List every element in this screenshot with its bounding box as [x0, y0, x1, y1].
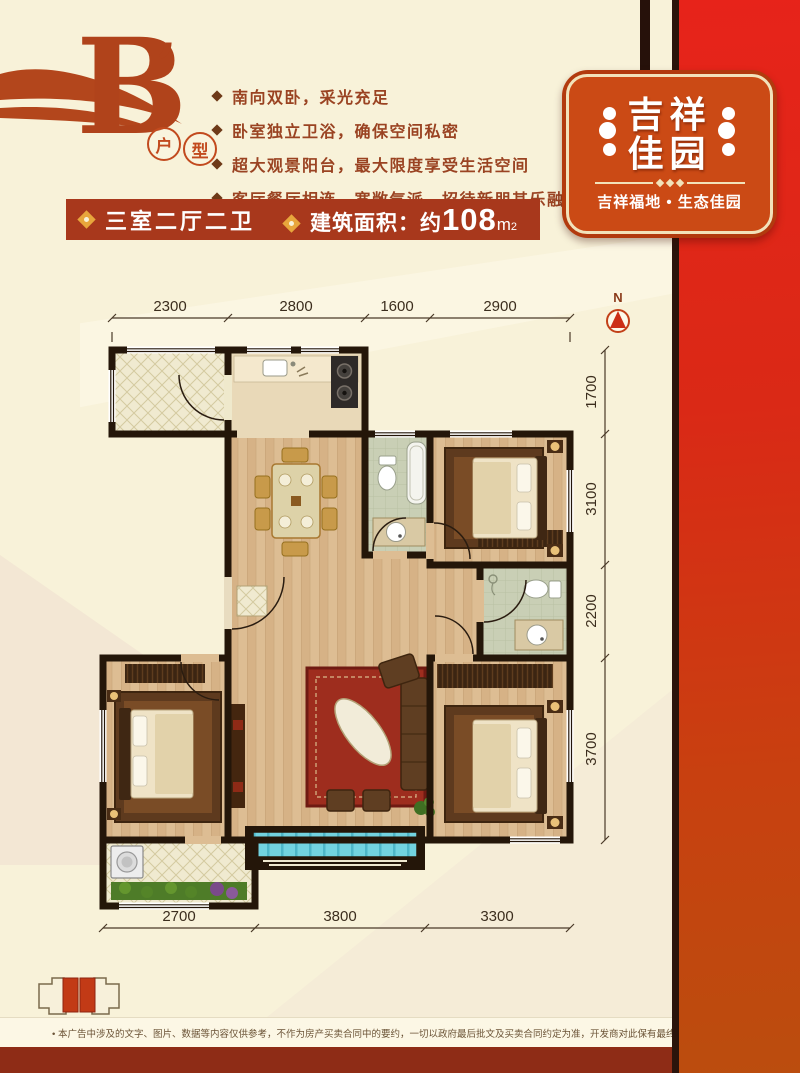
dim-bottom-0: 2700 — [162, 908, 195, 925]
feature-item: 超大观景阳台，最大限度享受生活空间 — [213, 152, 582, 176]
north-label: N — [613, 290, 622, 305]
badge-divider — [595, 180, 745, 186]
dim-bottom-1: 3800 — [323, 908, 356, 925]
area-unit: m — [497, 215, 511, 235]
brand-name-line2: 佳园 — [627, 135, 711, 174]
view-balcony — [245, 826, 425, 870]
spec-banner: 三室二厅二卫 建筑面积： 约 108 m 2 — [66, 199, 540, 240]
unit-tag-char: 户 — [147, 127, 181, 161]
poster-page: B ’ 户 型 南向双卧，采光充足 卧室独立卫浴，确保空间私密 超大观景阳台，最… — [0, 0, 800, 1073]
dim-top-1: 2800 — [279, 298, 312, 315]
area-label: 建筑面积： — [310, 207, 420, 237]
feature-text: 南向双卧，采光充足 — [232, 84, 390, 108]
room-spec-text: 三室二厅二卫 — [105, 204, 255, 236]
brand-plaque: 吉祥 佳园 吉祥福地 • 生态佳园 — [562, 70, 777, 238]
dim-right-0: 1700 — [583, 375, 600, 408]
unit-tag-char: 型 — [183, 132, 217, 166]
brand-name: 吉祥 佳园 — [627, 96, 711, 174]
diamond-bullet-icon — [211, 124, 222, 135]
diamond-bullet-icon — [211, 158, 222, 169]
feature-item: 南向双卧，采光充足 — [213, 84, 582, 108]
area-group: 建筑面积： 约 108 m 2 — [285, 202, 517, 238]
dim-right-2: 2200 — [583, 594, 600, 627]
key-plan-icon — [32, 966, 126, 1024]
brand-name-line1: 吉祥 — [627, 96, 711, 135]
dim-right-3: 3700 — [583, 732, 600, 765]
unit-type-badge: 户 型 — [147, 127, 217, 166]
floorplan-drawing: 2300 2800 1600 2900 1700 3100 2200 3700 … — [85, 280, 645, 960]
disclaimer-bar: • 本广告中涉及的文字、图片、数据等内容仅供参考，不作为房产买卖合同中的要约，一… — [0, 1017, 672, 1047]
area-approx: 约 — [420, 207, 442, 237]
flower-ornament-icon — [282, 214, 300, 232]
cloud-ornament-icon — [599, 107, 621, 163]
dim-top-2: 1600 — [380, 298, 413, 315]
feature-text: 卧室独立卫浴，确保空间私密 — [232, 118, 460, 142]
bedroom2-furniture — [445, 440, 563, 557]
cloud-ornament-icon — [718, 107, 740, 163]
diamond-bullet-icon — [211, 90, 222, 101]
dim-top-3: 2900 — [483, 298, 516, 315]
disclaimer-text: • 本广告中涉及的文字、图片、数据等内容仅供参考，不作为房产买卖合同中的要约，一… — [52, 1026, 672, 1040]
area-value: 108 — [442, 202, 497, 238]
dim-right-1: 3100 — [583, 482, 600, 515]
north-indicator: N — [607, 290, 629, 332]
dim-bottom-2: 3300 — [480, 908, 513, 925]
feature-text: 超大观景阳台，最大限度享受生活空间 — [232, 152, 530, 176]
area-unit-sup: 2 — [511, 221, 517, 233]
apostrophe-flourish: ’ — [156, 36, 176, 94]
brand-plaque-inner: 吉祥 佳园 吉祥福地 • 生态佳园 — [566, 74, 773, 234]
brand-tagline: 吉祥福地 • 生态佳园 — [597, 191, 742, 212]
flower-ornament-icon — [77, 210, 95, 228]
feature-item: 卧室独立卫浴，确保空间私密 — [213, 118, 582, 142]
dim-top-0: 2300 — [153, 298, 186, 315]
brand-title-row: 吉祥 佳园 — [599, 96, 739, 174]
footer-strip — [0, 1047, 672, 1073]
